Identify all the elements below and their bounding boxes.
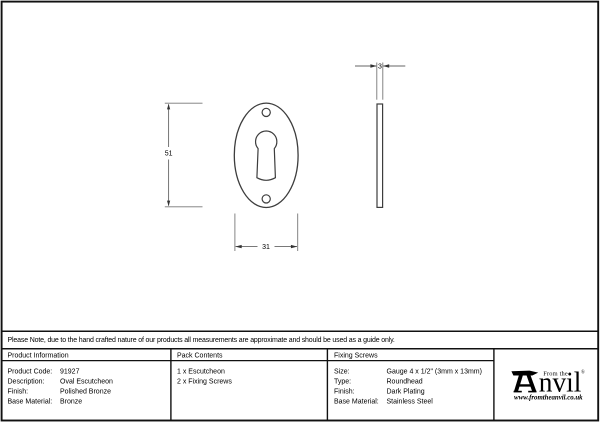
svg-text:Product Code:: Product Code:	[8, 369, 53, 376]
svg-text:Base Material:: Base Material:	[334, 398, 379, 405]
svg-text:Dark Plating: Dark Plating	[387, 388, 425, 395]
svg-text:Fixing Screws: Fixing Screws	[334, 353, 378, 360]
svg-text:91927: 91927	[60, 369, 80, 376]
svg-text:Bronze: Bronze	[60, 398, 82, 405]
svg-text:Product Information: Product Information	[8, 353, 69, 360]
svg-text:Base Material:: Base Material:	[8, 398, 53, 405]
svg-text:Size:: Size:	[334, 369, 350, 376]
svg-text:Gauge 4 x 1/2" (3mm x 13mm): Gauge 4 x 1/2" (3mm x 13mm)	[387, 369, 482, 376]
svg-text:2 x Fixing Screws: 2 x Fixing Screws	[177, 379, 232, 386]
svg-text:Finish:: Finish:	[8, 388, 29, 395]
svg-text:Finish:: Finish:	[334, 388, 355, 395]
svg-text:Oval Escutcheon: Oval Escutcheon	[60, 379, 113, 386]
svg-text:Stainless Steel: Stainless Steel	[387, 398, 434, 405]
svg-text:®: ®	[581, 370, 585, 376]
svg-text:Please Note, due to the hand c: Please Note, due to the hand crafted nat…	[8, 337, 395, 344]
svg-text:Polished Bronze: Polished Bronze	[60, 388, 111, 395]
svg-text:51: 51	[165, 151, 173, 158]
svg-text:3: 3	[378, 64, 382, 71]
svg-text:Type:: Type:	[334, 379, 351, 386]
svg-text:www.fromtheanvil.co.uk: www.fromtheanvil.co.uk	[514, 395, 583, 402]
svg-text:1 x Escutcheon: 1 x Escutcheon	[177, 369, 225, 376]
svg-text:Roundhead: Roundhead	[387, 379, 423, 386]
svg-text:31: 31	[262, 244, 270, 251]
svg-text:Pack Contents: Pack Contents	[177, 353, 223, 360]
svg-text:Description:: Description:	[8, 379, 45, 386]
